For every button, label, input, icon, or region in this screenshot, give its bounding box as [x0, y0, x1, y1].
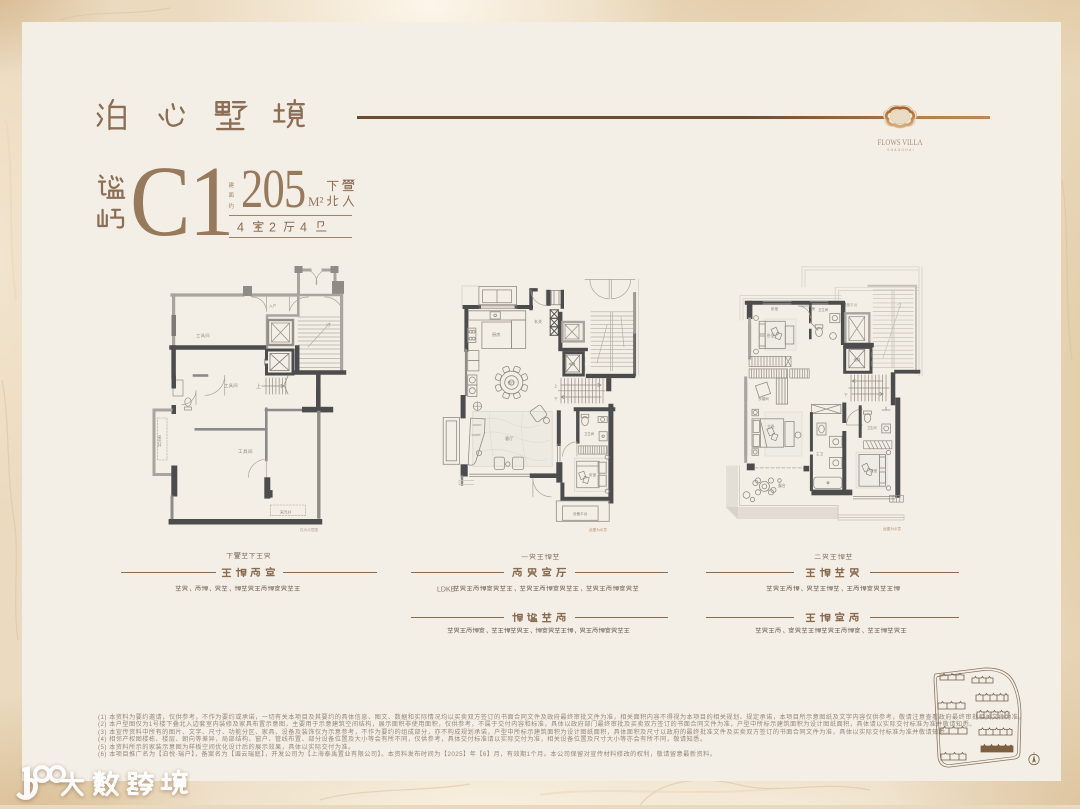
svg-text:主卧: 主卧 [767, 423, 775, 429]
svg-text:4: 4 [300, 221, 307, 235]
svg-text:采光井: 采光井 [158, 434, 163, 448]
svg-text:厨房: 厨房 [492, 331, 500, 338]
svg-text:卧室: 卧室 [771, 306, 779, 311]
svg-text:客厅: 客厅 [505, 435, 513, 442]
svg-text:上: 上 [554, 383, 558, 388]
svg-text:4: 4 [237, 221, 244, 235]
svg-text:2: 2 [269, 221, 276, 235]
svg-text:工具间: 工具间 [238, 448, 253, 455]
svg-text:电梯: 电梯 [569, 362, 576, 367]
svg-text:此图为示意: 此图为示意 [589, 527, 607, 532]
svg-text:此图为示意: 此图为示意 [883, 526, 901, 531]
svg-text:卧室: 卧室 [870, 468, 878, 473]
svg-text:仅为示意图: 仅为示意图 [300, 527, 318, 532]
svg-text:卫生间: 卫生间 [867, 425, 877, 430]
svg-text:LDKB: LDKB [437, 587, 456, 594]
svg-text:工具间: 工具间 [224, 382, 238, 389]
svg-text:露台: 露台 [778, 483, 786, 488]
svg-text:设备平台: 设备平台 [573, 511, 588, 516]
svg-text:下: 下 [554, 397, 558, 401]
svg-text:卫生间: 卫生间 [818, 307, 829, 312]
svg-text:衣帽间: 衣帽间 [758, 396, 769, 401]
svg-text:工具间: 工具间 [196, 332, 210, 339]
svg-text:卧室: 卧室 [589, 472, 597, 477]
svg-text:上: 上 [256, 383, 261, 390]
svg-text:电梯: 电梯 [854, 357, 861, 362]
svg-text:卫生间: 卫生间 [584, 431, 595, 436]
svg-text:餐厅: 餐厅 [508, 380, 516, 385]
svg-text:玄关: 玄关 [534, 318, 542, 324]
svg-text:采光井: 采光井 [280, 510, 292, 515]
svg-text:下: 下 [844, 393, 848, 397]
svg-text:入户: 入户 [269, 303, 277, 308]
svg-text:卧室: 卧室 [767, 333, 775, 338]
svg-text:主卫: 主卫 [816, 451, 824, 456]
